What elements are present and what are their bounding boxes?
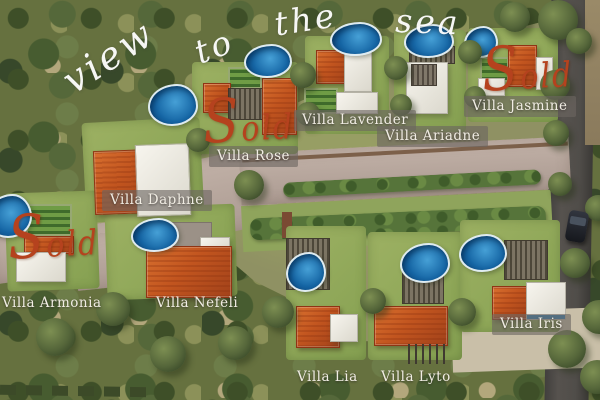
watermark-word: sea (395, 4, 461, 39)
watermark-word: the (272, 0, 339, 41)
watermark-word: view (56, 13, 161, 100)
site-plan: Villa RoseVilla LavenderVilla AriadneVil… (0, 0, 600, 400)
watermark-word: to (190, 24, 238, 69)
watermark-layer: viewtothesea (0, 0, 600, 400)
